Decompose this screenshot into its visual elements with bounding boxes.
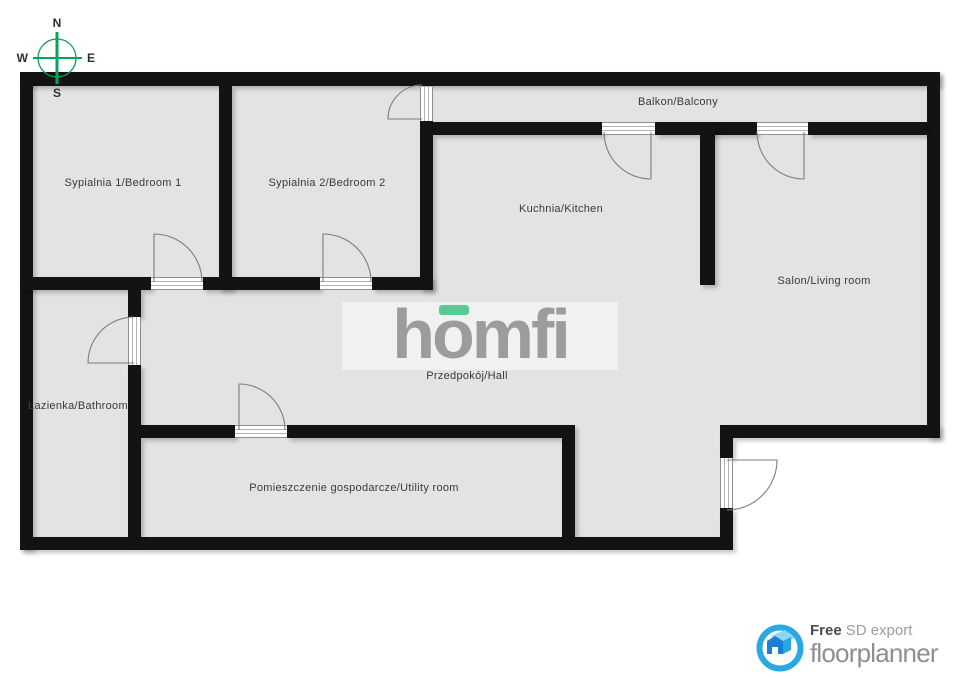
room-label-bedroom1: Sypialnia 1/Bedroom 1 — [65, 177, 182, 189]
homfi-logo: homfi — [340, 298, 620, 370]
door-swing-kitchen-balcony — [604, 132, 651, 179]
door-swing-utility — [239, 384, 285, 430]
compass-label-west: W — [17, 51, 29, 65]
door-swing-entrance — [727, 460, 777, 510]
homfi-logo-letter-o: o — [432, 299, 472, 369]
room-label-living-room: Salon/Living room — [777, 275, 870, 287]
room-label-utility-room: Pomieszczenie gospodarcze/Utility room — [249, 482, 458, 494]
floorplanner-house-icon — [756, 624, 804, 672]
floorplanner-sd-export-label: SD export — [846, 622, 913, 639]
room-label-balcony: Balkon/Balcony — [638, 96, 718, 108]
floorplanner-text: FreeSD export floorplanner — [810, 622, 938, 669]
floorplanner-branding: FreeSD export floorplanner — [752, 620, 952, 674]
floorplanner-tagline: FreeSD export — [810, 622, 938, 639]
compass-label-east: E — [87, 51, 95, 65]
compass-label-south: S — [53, 86, 61, 100]
floorplanner-wordmark: floorplanner — [810, 638, 938, 669]
floorplanner-free-label: Free — [810, 622, 842, 639]
room-label-bedroom2: Sypialnia 2/Bedroom 2 — [269, 177, 386, 189]
door-swing-bedroom2-balcony — [388, 85, 422, 119]
homfi-logo-text-start: h — [392, 299, 432, 369]
door-swing-bathroom — [88, 317, 134, 363]
homfi-logo-text-end: mfi — [472, 299, 568, 369]
door-swing-bedroom1 — [154, 234, 202, 282]
homfi-accent-bar — [439, 305, 469, 315]
compass-label-north: N — [53, 16, 62, 30]
room-label-bathroom: Łazienka/Bathroom — [28, 400, 128, 412]
floorplan-canvas: Sypialnia 1/Bedroom 1 Sypialnia 2/Bedroo… — [0, 0, 960, 679]
door-swing-bedroom2 — [323, 234, 371, 282]
room-label-kitchen: Kuchnia/Kitchen — [519, 203, 603, 215]
compass-rose-icon: N E S W — [15, 12, 99, 100]
door-swing-living-balcony — [757, 132, 804, 179]
